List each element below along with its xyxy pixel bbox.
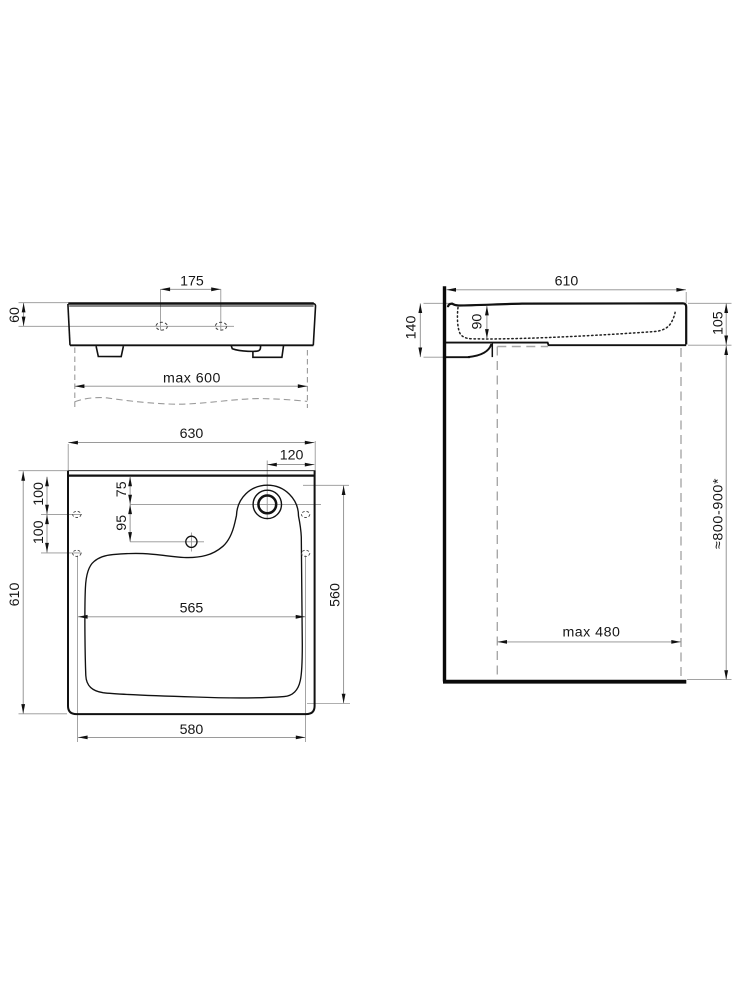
svg-text:560: 560 <box>327 583 343 607</box>
svg-text:140: 140 <box>403 316 419 340</box>
svg-text:max 600: max 600 <box>163 370 221 386</box>
svg-text:max 480: max 480 <box>562 624 620 640</box>
svg-text:100: 100 <box>31 520 47 544</box>
svg-text:75: 75 <box>114 481 130 497</box>
svg-text:175: 175 <box>180 273 204 289</box>
svg-text:610: 610 <box>7 583 23 607</box>
svg-text:90: 90 <box>470 314 486 330</box>
svg-text:565: 565 <box>180 600 204 616</box>
svg-text:120: 120 <box>280 447 304 463</box>
svg-text:≈800-900*: ≈800-900* <box>711 478 727 549</box>
svg-text:630: 630 <box>180 426 204 442</box>
svg-text:60: 60 <box>7 307 23 323</box>
svg-text:95: 95 <box>114 515 130 531</box>
svg-text:610: 610 <box>555 274 579 290</box>
svg-text:105: 105 <box>710 311 726 335</box>
svg-text:100: 100 <box>31 482 47 506</box>
svg-text:580: 580 <box>180 722 204 738</box>
